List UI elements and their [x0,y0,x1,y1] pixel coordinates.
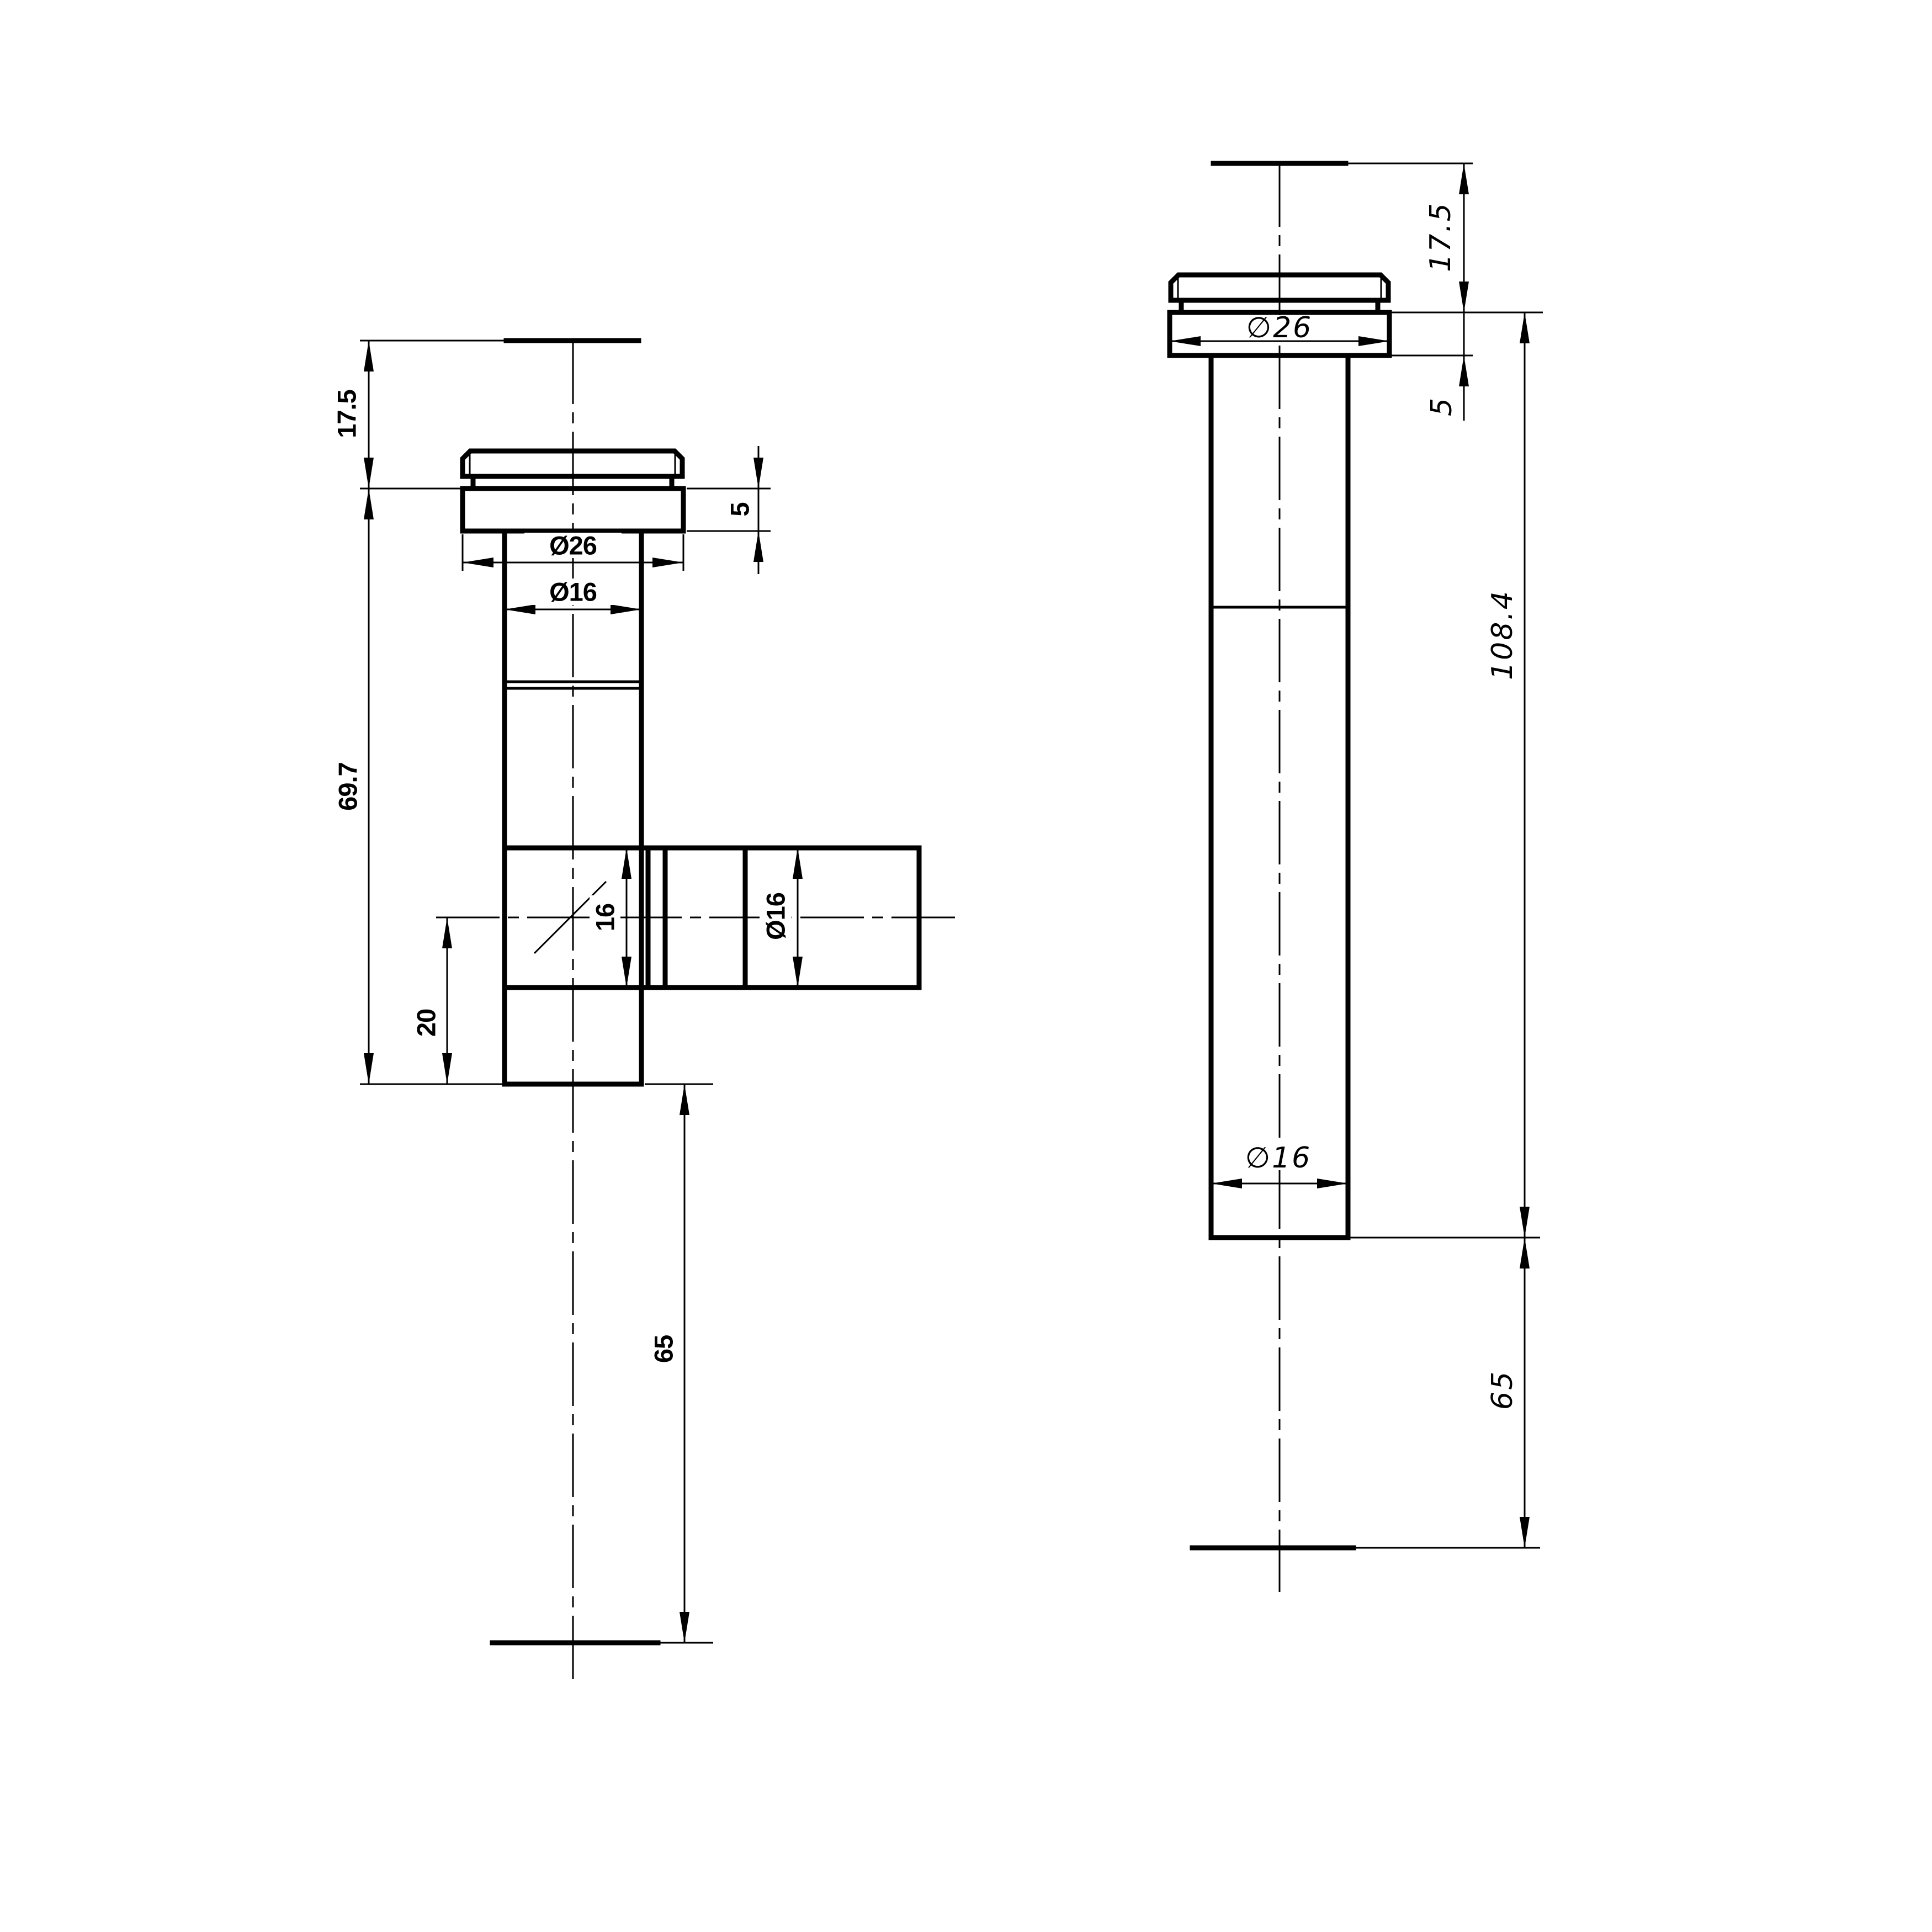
side-dim-17-5-and-5: 17.5 5 [1424,163,1469,421]
arrow-up-icon [364,489,374,519]
side-dim-text-65: 65 [1486,1370,1519,1410]
front-dim-17-5-and-69-7: 17.5 69.7 [332,341,374,1084]
front-dim-text-dia16-branch: Ø16 [761,893,790,940]
arrow-down-icon [622,957,631,988]
arrow-up-icon [1459,163,1469,194]
arrow-left-icon [1170,336,1201,346]
arrow-up-icon [753,531,763,562]
front-dim-dia16-body: Ø16 [505,577,641,615]
arrow-up-icon [622,848,631,879]
side-dim-dia26: ∅26 [1170,311,1389,346]
side-dim-text-dia26: ∅26 [1246,311,1313,344]
arrow-down-icon [1520,1517,1530,1548]
arrow-down-icon [680,1612,689,1643]
front-dim-text-69-7: 69.7 [333,762,363,810]
front-dim-text-17-5: 17.5 [332,390,362,438]
side-dim-text-dia16: ∅16 [1245,1142,1312,1175]
front-dim-text-dia26: Ø26 [549,531,597,560]
front-dim-text-65: 65 [649,1335,678,1363]
arrow-left-icon [505,604,535,614]
front-dim-text-16: 16 [591,904,620,931]
arrow-down-icon [364,458,374,489]
arrow-right-icon [652,558,683,567]
arrow-right-icon [1358,336,1389,346]
arrow-down-icon [753,458,763,489]
arrow-down-icon [1459,282,1469,312]
arrow-right-icon [611,604,641,614]
side-dim-text-17-5: 17.5 [1424,201,1457,272]
side-dim-108-4-and-65: 108.4 65 [1486,312,1530,1548]
side-extension-lines [1346,163,1543,1548]
side-dim-text-5: 5 [1425,396,1458,416]
arrow-down-icon [364,1053,374,1084]
technical-drawing-canvas: 17.5 69.7 20 16 Ø16 [0,0,1932,1932]
front-dim-dia16-branch: Ø16 [760,848,803,988]
arrow-down-icon [793,957,803,988]
front-dim-5: 5 [725,446,764,574]
arrow-up-icon [1520,312,1530,343]
arrow-up-icon [793,848,803,879]
front-dim-text-20: 20 [412,1009,441,1037]
front-dim-65: 65 [649,1084,690,1643]
arrow-down-icon [1520,1207,1530,1238]
arrow-left-icon [463,558,493,567]
front-dim-text-5: 5 [725,502,755,516]
side-view: 17.5 5 ∅26 108.4 65 ∅16 [1170,163,1543,1592]
front-dim-20: 20 [412,917,453,1084]
side-dim-text-108-4: 108.4 [1486,590,1519,680]
arrow-up-icon [1459,355,1469,386]
front-view: 17.5 69.7 20 16 Ø16 [332,341,957,1685]
arrow-right-icon [1317,1179,1348,1188]
arrow-down-icon [442,1053,452,1084]
arrow-up-icon [364,341,374,371]
arrow-up-icon [1520,1238,1530,1268]
arrow-up-icon [680,1084,689,1115]
arrow-up-icon [442,917,452,948]
front-dim-text-dia16-body: Ø16 [549,577,597,607]
front-dim-dia26: Ø26 [463,531,683,568]
arrow-left-icon [1211,1179,1242,1188]
